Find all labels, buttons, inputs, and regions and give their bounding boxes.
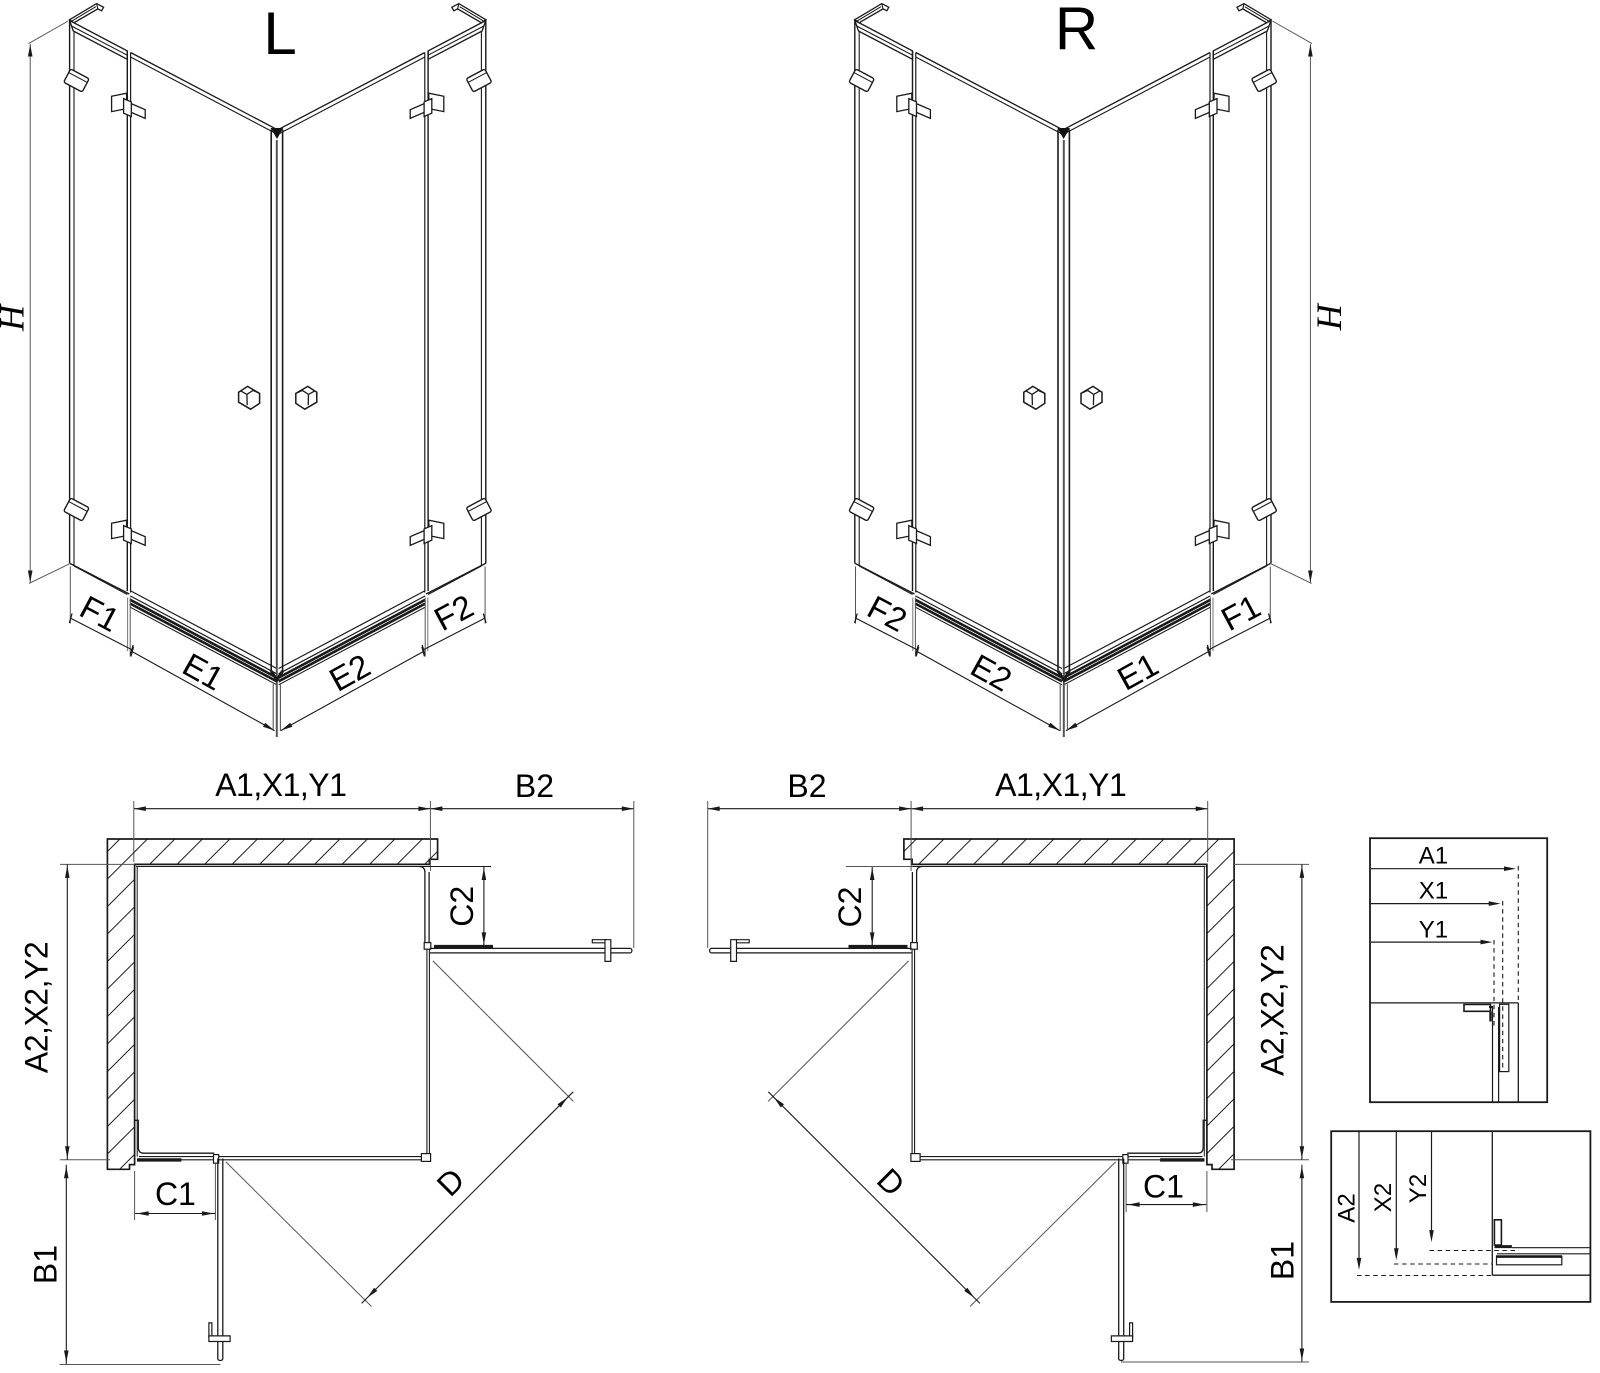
svg-text:C2: C2 (444, 886, 480, 927)
svg-text:B2: B2 (787, 768, 826, 804)
svg-text:B2: B2 (515, 768, 554, 804)
svg-text:C1: C1 (155, 1176, 196, 1212)
svg-text:A2: A2 (1334, 1193, 1361, 1222)
svg-text:Y1: Y1 (1419, 916, 1448, 943)
svg-text:A2,X2,Y2: A2,X2,Y2 (19, 942, 55, 1073)
svg-text:C2: C2 (832, 887, 868, 928)
svg-text:A1,X1,Y1: A1,X1,Y1 (995, 767, 1126, 803)
svg-text:A1,X1,Y1: A1,X1,Y1 (215, 767, 346, 803)
svg-text:C1: C1 (1143, 1168, 1184, 1204)
svg-text:L: L (263, 0, 296, 67)
svg-text:A2,X2,Y2: A2,X2,Y2 (1255, 945, 1291, 1076)
svg-text:A1: A1 (1419, 842, 1448, 869)
svg-text:X2: X2 (1370, 1183, 1397, 1212)
svg-text:H: H (0, 303, 31, 332)
svg-text:B1: B1 (28, 1245, 64, 1284)
svg-text:Y2: Y2 (1405, 1174, 1432, 1203)
svg-text:B1: B1 (1265, 1241, 1301, 1280)
svg-text:X1: X1 (1419, 877, 1448, 904)
svg-text:R: R (1055, 0, 1098, 62)
svg-text:H: H (1310, 302, 1350, 331)
